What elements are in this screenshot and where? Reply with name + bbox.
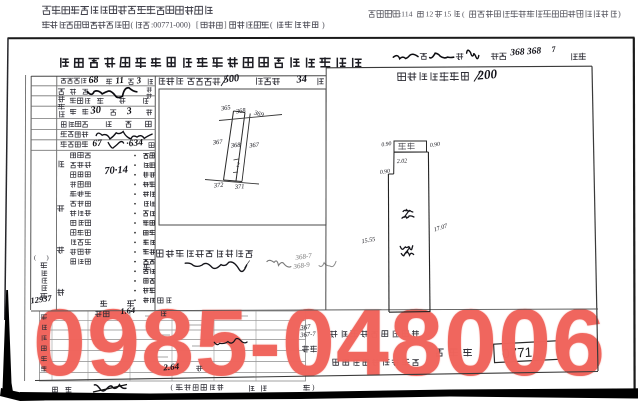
svg-text:(: ( (34, 255, 36, 262)
svg-text:0.90: 0.90 (430, 142, 441, 149)
svg-text:2.02: 2.02 (397, 158, 408, 165)
svg-text:]: ] (224, 21, 227, 30)
svg-text:): ) (47, 255, 49, 262)
svg-text:368-9: 368-9 (292, 261, 311, 271)
svg-text:12: 12 (426, 9, 434, 18)
svg-text:368-7: 368-7 (294, 252, 313, 262)
svg-text:): ) (312, 382, 315, 391)
svg-text:30: 30 (89, 105, 102, 117)
svg-text::: : (251, 248, 254, 258)
svg-text:11: 11 (115, 75, 124, 86)
svg-text:12937: 12937 (30, 293, 53, 306)
svg-text:34: 34 (295, 74, 307, 86)
svg-text:): ) (618, 10, 621, 19)
svg-text:·634: ·634 (126, 138, 144, 149)
svg-text:367: 367 (212, 139, 224, 147)
svg-text:0.90: 0.90 (381, 141, 392, 148)
svg-text:3: 3 (125, 106, 132, 118)
svg-text:372: 372 (213, 182, 225, 190)
svg-text:368: 368 (230, 142, 242, 150)
svg-text:367: 367 (248, 142, 260, 150)
svg-text:70·14: 70·14 (104, 165, 128, 178)
svg-text:(: ( (171, 382, 174, 391)
svg-text:(: ( (462, 9, 465, 18)
svg-text:368 368: 368 368 (509, 46, 542, 58)
svg-text::00771-000): :00771-000) (151, 21, 191, 30)
svg-text::114: :114 (399, 9, 413, 18)
svg-text:17.07: 17.07 (433, 222, 449, 233)
svg-text:): ) (322, 21, 325, 30)
svg-text:365: 365 (220, 104, 232, 113)
svg-text:1.64: 1.64 (120, 305, 136, 316)
svg-text:(: ( (131, 21, 134, 30)
svg-text:68: 68 (88, 74, 99, 86)
svg-text:7: 7 (551, 44, 557, 54)
svg-text:2.64: 2.64 (162, 361, 180, 372)
svg-text:367-7: 367-7 (299, 331, 317, 339)
svg-text:2: 2 (237, 163, 240, 169)
svg-text:371: 371 (234, 183, 245, 191)
svg-text:15.55: 15.55 (361, 236, 376, 245)
svg-text:[: [ (196, 21, 199, 30)
svg-text:(: ( (270, 21, 273, 30)
svg-text:/: / (243, 257, 251, 272)
svg-text:15: 15 (444, 9, 452, 18)
